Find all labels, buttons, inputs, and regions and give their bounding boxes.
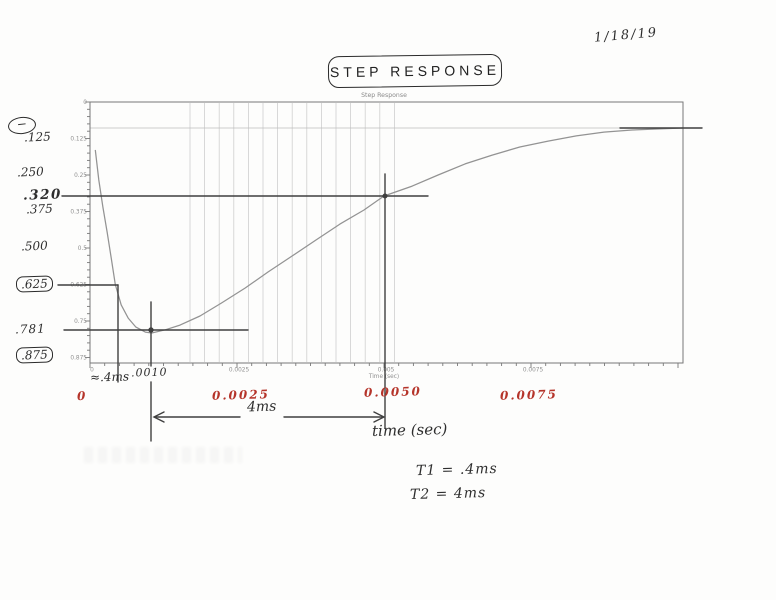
hand-ylabel-781: .781: [15, 321, 46, 336]
hand-ylabel-375: .375: [26, 202, 53, 217]
red-xlabel-0075: 0.0075: [500, 387, 558, 403]
y-tick-label: 0.125: [70, 137, 87, 143]
x-tick-label: 0.0025: [229, 368, 250, 374]
step-response-chart: 00.00250.0050.007500.1250.250.3750.50.62…: [0, 0, 776, 600]
crossing-point-marker: [383, 194, 387, 198]
y-tick-label: 0.75: [74, 319, 87, 325]
hand-0010: .0010: [131, 366, 168, 380]
hand-ylabel-125: .125: [24, 130, 51, 145]
x-tick-label: 0.0075: [523, 368, 544, 374]
hand-ylabel-875-boxed: .875: [16, 346, 53, 363]
red-xlabel-0: 0: [77, 389, 88, 403]
hand-ylabel-625-boxed: .625: [16, 275, 53, 292]
hand-4ms-span-label: 4ms: [247, 399, 277, 416]
y-tick-label: 0.5: [78, 246, 88, 252]
y-tick-label: 0.375: [70, 210, 87, 216]
hand-ylabel-250: .250: [17, 165, 44, 180]
grid-band: [190, 103, 394, 362]
x-axis-label: Time (sec): [368, 374, 399, 380]
note-t2: T2 = 4ms: [410, 485, 487, 503]
curve-path: [95, 128, 682, 333]
x-tick-label: 0.005: [378, 368, 395, 374]
hand-ylabel-500: .500: [21, 239, 48, 254]
plot-frame: [90, 102, 683, 363]
y-tick-label: 0.25: [74, 173, 87, 179]
note-t1: T1 = .4ms: [416, 461, 498, 479]
axis-ticks: [85, 102, 678, 368]
y-tick-label: 0.625: [70, 283, 87, 289]
scanned-step-response-page: 1/18/19 STEP RESPONSE 00.00250.0050.0075…: [0, 0, 776, 600]
hand-approx-0p4ms: ≈.4ms: [90, 369, 129, 384]
red-xlabel-0050: 0.0050: [364, 384, 422, 400]
y-tick-label: 0.875: [70, 356, 87, 362]
bleed-through-smudge: [84, 447, 242, 463]
hand-time-sec-label: time (sec): [372, 420, 448, 440]
response-curve: [95, 128, 682, 333]
printed-chart-title: Step Response: [361, 92, 407, 99]
minimum-point-marker: [149, 328, 153, 332]
y-tick-label: 0: [83, 100, 87, 106]
